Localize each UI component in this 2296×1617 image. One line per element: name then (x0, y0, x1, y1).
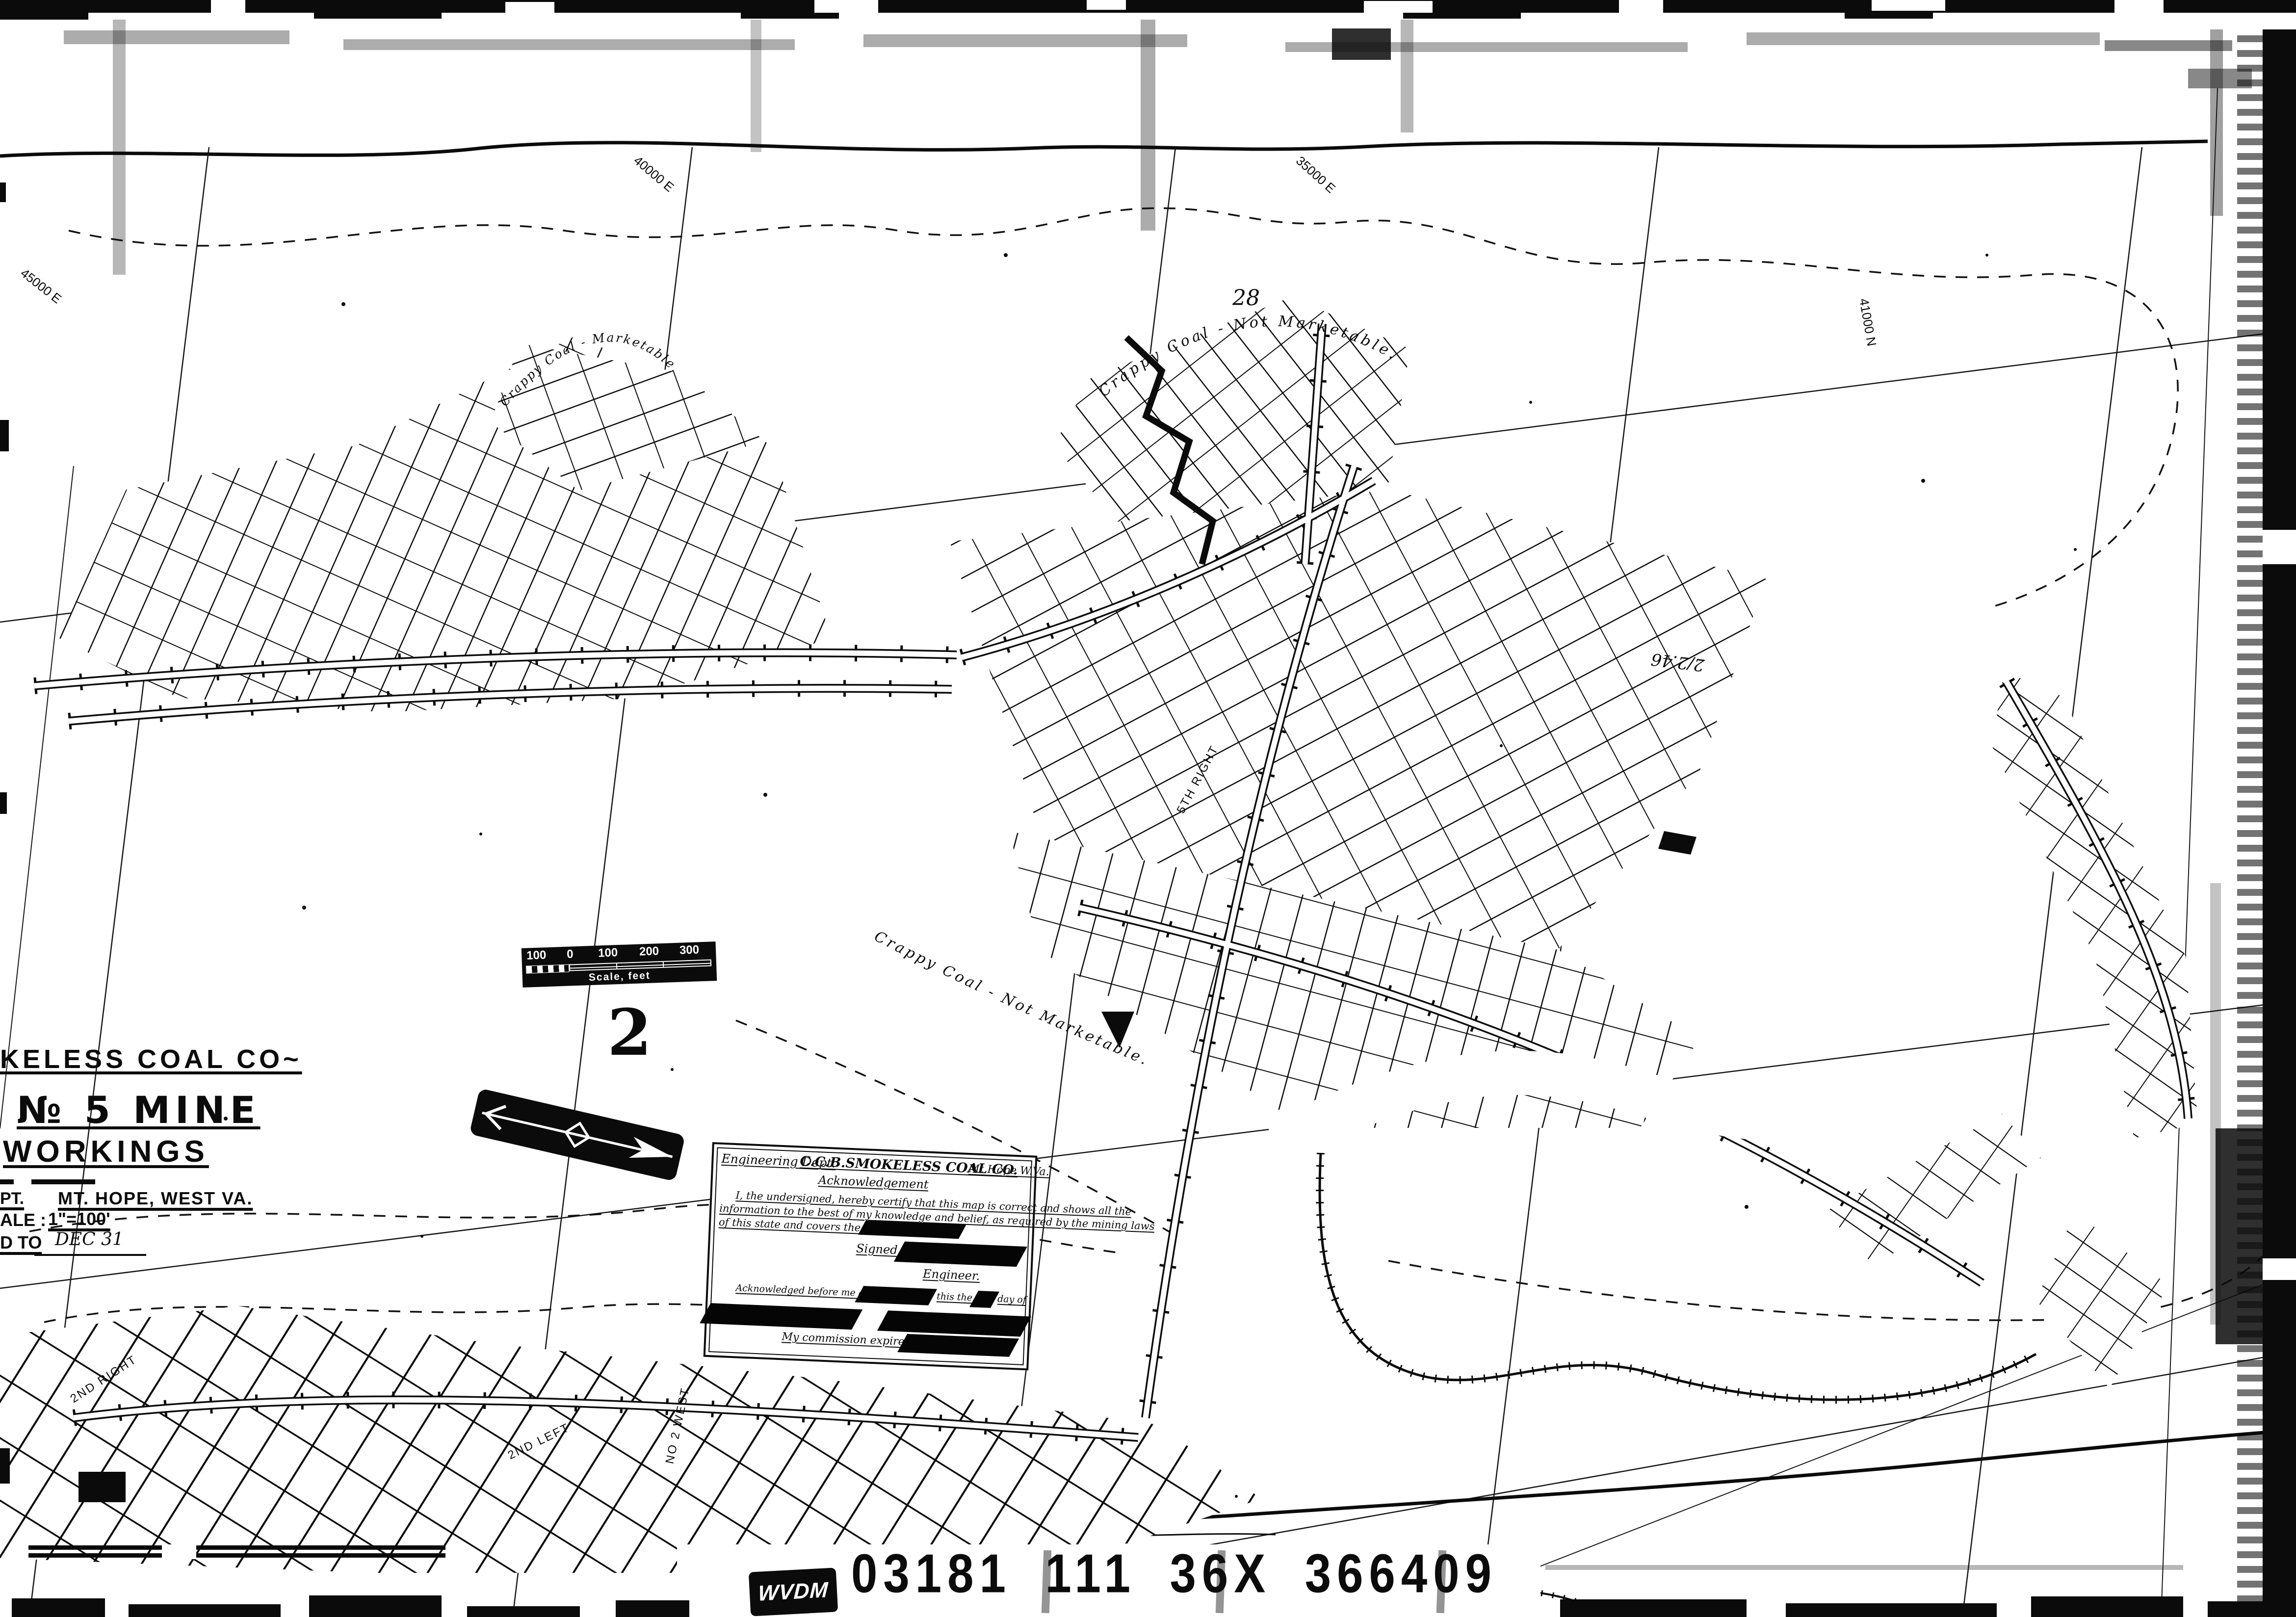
film-mark (2188, 69, 2252, 88)
grid-label-45000e: 45000 E (18, 265, 64, 306)
film-speckle (1545, 1565, 2183, 1570)
film-blob (2208, 1601, 2291, 1617)
film-blob (309, 1595, 442, 1617)
film-blob (467, 1606, 580, 1617)
film-streak (751, 20, 761, 152)
film-nub (0, 420, 9, 451)
film-speckle (64, 30, 289, 44)
film-gap (2263, 1258, 2296, 1280)
film-blob (2031, 1596, 2183, 1617)
film-streak (1401, 20, 1413, 132)
barrier-and-crop-curve (1276, 1069, 2036, 1614)
ack-commission-label: My commission expires (782, 1330, 910, 1348)
film-gap (2263, 530, 2296, 564)
film-id-group: 111 (1045, 1542, 1136, 1605)
film-mark (741, 13, 839, 19)
north-arrow (469, 1088, 685, 1181)
scale-tick: 100 (526, 948, 547, 963)
redaction-notary-title (855, 1286, 937, 1305)
film-mark (0, 13, 88, 20)
title-dash-mark (31, 1179, 95, 1184)
film-nub (0, 1448, 10, 1484)
film-streak (2210, 29, 2223, 216)
panel-number-28: 28 (1232, 286, 1260, 311)
ack-this-the: this the (937, 1291, 973, 1303)
film-streak (2210, 883, 2221, 1325)
redaction-day (969, 1291, 999, 1308)
title-dept-fragment: PT. (0, 1189, 24, 1208)
film-id-group: 03181 (851, 1542, 1012, 1605)
scale-bar-checker (526, 965, 570, 974)
film-edge-speckle-right (2237, 29, 2263, 1617)
film-gap (814, 0, 878, 13)
mine-map-canvas: Crappy Coal - Not Marketable. Crappy Coa… (0, 0, 2296, 1617)
title-company-line: KELESS COAL CO~ (0, 1044, 302, 1074)
film-gap (1087, 0, 1126, 10)
film-streak (1141, 20, 1155, 231)
film-speckle (343, 39, 795, 50)
film-edge-band-top (0, 0, 2296, 13)
film-id-number: 03181 111 36X 366409 (851, 1551, 1529, 1605)
redaction-notary-signature (877, 1310, 1031, 1336)
title-extended-fragment: D TO (0, 1232, 42, 1253)
acknowledgement-box: Engineering Dept. C.C.B.SMOKELESS COAL C… (704, 1142, 1038, 1370)
title-scale-value: 1"=100' (48, 1209, 110, 1229)
film-blob (1786, 1603, 1997, 1617)
scale-tick: 300 (679, 943, 700, 957)
film-blob (12, 1598, 105, 1617)
scale-tick: 200 (639, 944, 659, 959)
film-mark (1403, 13, 1521, 19)
film-blob (129, 1604, 281, 1617)
bottom-rule-line (28, 1553, 445, 1558)
grid-label-41000n: 41000 N (1856, 297, 1879, 347)
title-workings-line: WORKINGS (3, 1134, 209, 1169)
bottom-rule-gap (162, 1544, 196, 1559)
film-mark (314, 13, 442, 19)
film-blob (1560, 1599, 1747, 1617)
film-nub (0, 792, 7, 814)
film-speckle (863, 34, 1187, 47)
title-extended-underline (34, 1254, 146, 1256)
microfilm-sheet: Crappy Coal - Not Marketable. Crappy Coa… (0, 0, 2296, 1617)
film-gap (1619, 0, 1663, 13)
film-blob (1332, 28, 1391, 60)
mine-workings-clusters (0, 297, 2198, 1573)
grid-coordinate-labels: 45000 E 40000 E 35000 E 41000 N (18, 153, 1879, 347)
redaction-signature (894, 1242, 1027, 1267)
film-gap (505, 2, 554, 13)
scale-tick: 0 (567, 947, 574, 961)
film-gap (211, 0, 245, 13)
ack-engineer-label: Engineer. (923, 1267, 980, 1283)
title-dash-mark (0, 1179, 14, 1184)
film-blob (2216, 1128, 2263, 1344)
bottom-rule-line (28, 1545, 445, 1550)
acknowledgement-inner-border: Engineering Dept. C.C.B.SMOKELESS COAL C… (708, 1147, 1032, 1365)
film-speckle (1747, 32, 2100, 45)
sheet-number: 2 (607, 995, 652, 1070)
ack-before-me: Acknowledged before me a (735, 1282, 864, 1299)
film-archive-badge: WVDM (749, 1567, 838, 1616)
film-mark (1845, 13, 1933, 19)
title-scale-fragment: ALE : (0, 1210, 46, 1230)
film-edge-band-right (2263, 29, 2296, 1617)
film-blob (616, 1600, 689, 1617)
film-id-group: 366409 (1305, 1542, 1497, 1605)
grid-label-35000e: 35000 E (1293, 153, 1338, 196)
film-gap (2114, 0, 2164, 13)
scale-tick: 100 (598, 946, 618, 960)
ack-day-of: day of (997, 1294, 1027, 1305)
film-nub (0, 183, 6, 202)
grid-label-40000e: 40000 E (631, 153, 677, 195)
title-extended-value: DEC 31 (55, 1229, 124, 1250)
redaction-month (700, 1303, 862, 1330)
title-mine-line: № 5 MINE (17, 1088, 261, 1132)
ack-signed-label: Signed (856, 1241, 898, 1257)
film-streak (113, 20, 126, 275)
film-gap (1872, 0, 1945, 11)
scale-bar: 100 0 100 200 300 Scale, feet (522, 941, 717, 988)
film-gap (1364, 1, 1433, 13)
title-location: MT. HOPE, WEST VA. (58, 1188, 253, 1209)
film-archive-code: WVDM (757, 1578, 829, 1606)
redaction-commission-date (897, 1334, 1019, 1357)
